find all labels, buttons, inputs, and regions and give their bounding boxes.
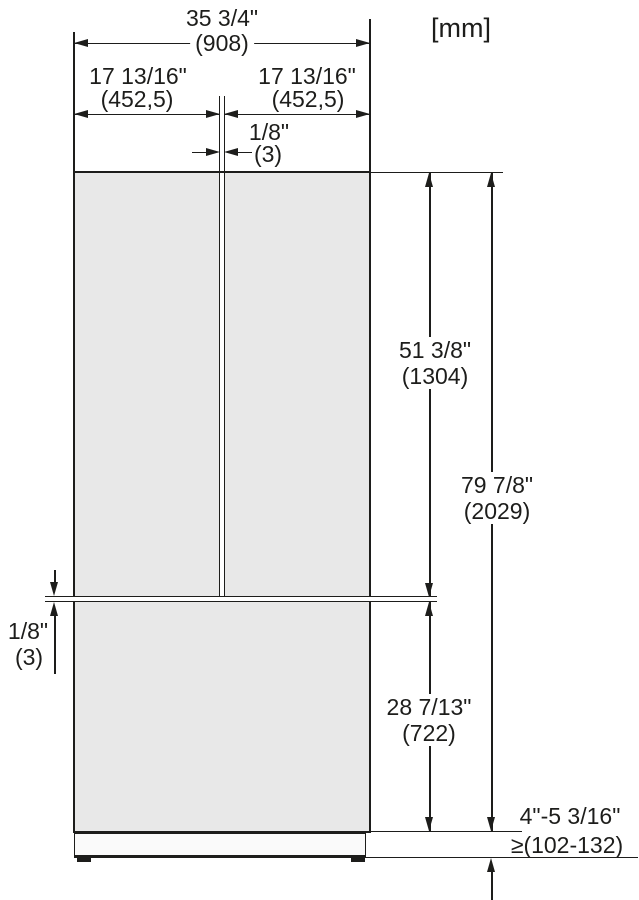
lower-height-inches: 28 7/13" bbox=[387, 694, 472, 720]
side-gap-inches: 1/8" bbox=[8, 618, 48, 644]
plinth-height-mm: ≥(102-132) bbox=[511, 832, 623, 858]
right-door-mm: (452,5) bbox=[272, 86, 345, 112]
arrow-up-icon bbox=[425, 173, 433, 187]
side-gap-tail-upper bbox=[54, 570, 56, 583]
extension-line-left bbox=[73, 32, 75, 172]
arrow-left-icon bbox=[74, 110, 88, 118]
upper-height-inches: 51 3/8" bbox=[399, 337, 471, 363]
plinth-arrow-tail bbox=[491, 871, 493, 900]
arrow-left-icon bbox=[224, 148, 238, 156]
door-gap-mm: (3) bbox=[254, 141, 282, 167]
overall-height-inches: 79 7/8" bbox=[461, 472, 533, 498]
right-foot bbox=[351, 857, 365, 863]
installation-diagram: 35 3/4" (908) 17 13/16" (452,5) 17 13/16… bbox=[0, 0, 639, 900]
arrow-up-icon bbox=[487, 173, 495, 187]
arrow-down-icon bbox=[50, 582, 58, 596]
left-door-mm: (452,5) bbox=[101, 86, 174, 112]
upper-height-mm: (1304) bbox=[399, 363, 471, 389]
lower-height-label: 28 7/13" (722) bbox=[382, 694, 477, 746]
plinth-panel bbox=[74, 833, 366, 858]
gap-arrow-tail-left bbox=[192, 152, 206, 154]
unit-note: [mm] bbox=[431, 14, 491, 42]
arrow-right-icon bbox=[356, 39, 370, 47]
overall-width-mm: (908) bbox=[190, 30, 254, 56]
arrow-left-icon bbox=[224, 110, 238, 118]
overall-height-mm: (2029) bbox=[461, 498, 533, 524]
plinth-height-inches: 4"-5 3/16" bbox=[520, 803, 621, 829]
side-gap-tail-lower bbox=[54, 616, 56, 674]
arrow-left-icon bbox=[74, 39, 88, 47]
body-top-edge-patch bbox=[217, 171, 226, 173]
lower-height-mm: (722) bbox=[387, 720, 472, 746]
overall-width-inches: 35 3/4" bbox=[186, 5, 258, 31]
dim-line-left-door bbox=[74, 114, 220, 116]
side-gap-mm: (3) bbox=[15, 644, 43, 670]
arrow-up-icon bbox=[425, 602, 433, 616]
extension-line-door-bottom bbox=[371, 831, 522, 833]
dim-line-right-door bbox=[224, 114, 370, 116]
upper-height-label: 51 3/8" (1304) bbox=[394, 337, 476, 389]
arrow-right-icon bbox=[206, 110, 220, 118]
arrow-down-icon bbox=[425, 583, 433, 597]
left-foot bbox=[77, 857, 91, 863]
arrow-down-icon bbox=[487, 817, 495, 831]
arrow-right-icon bbox=[206, 148, 220, 156]
arrow-right-icon bbox=[356, 110, 370, 118]
gap-arrow-tail-right bbox=[238, 152, 252, 154]
door-drawer-gap bbox=[45, 596, 437, 602]
arrow-down-icon bbox=[425, 817, 433, 831]
extension-line-top-right bbox=[371, 172, 503, 174]
overall-height-label: 79 7/8" (2029) bbox=[456, 472, 538, 524]
arrow-up-icon bbox=[50, 602, 58, 616]
